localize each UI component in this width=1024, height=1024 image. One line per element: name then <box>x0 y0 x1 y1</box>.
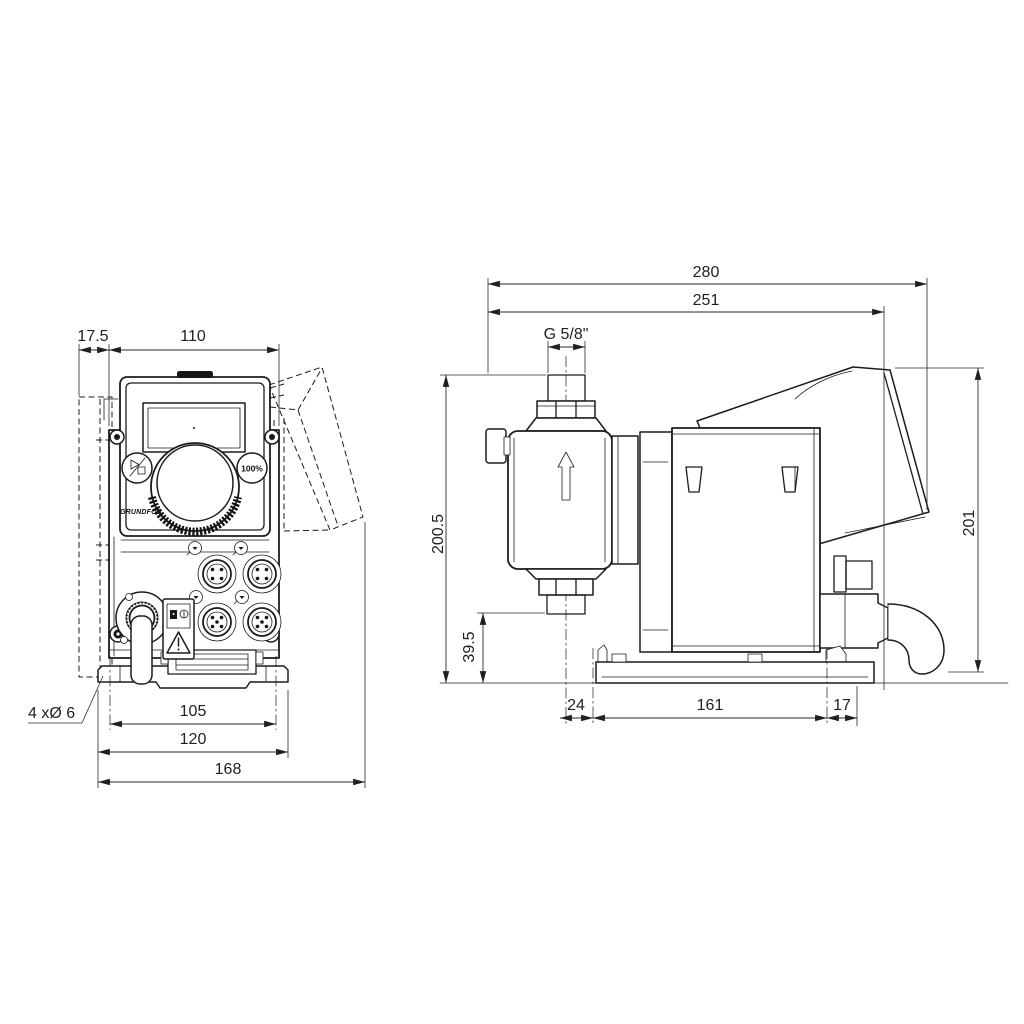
panel-top-clip <box>177 371 213 378</box>
power-cable-front <box>131 616 152 684</box>
m12-connector-top-right[interactable] <box>243 555 281 593</box>
warning-label <box>163 599 194 659</box>
outlet-thread <box>548 375 585 401</box>
pump-head-body <box>508 431 612 569</box>
gland-screw <box>126 594 133 601</box>
head-flange <box>612 436 638 564</box>
label-mounting-holes: 4 xØ 6 <box>28 676 103 723</box>
dim-text-4xd6: 4 xØ 6 <box>28 705 75 722</box>
gland-screw <box>121 637 128 644</box>
inlet-nut <box>539 579 593 595</box>
dim-text-280: 280 <box>693 264 720 281</box>
dim-text-251: 251 <box>693 292 720 309</box>
hundred-percent-button[interactable]: 100% <box>237 453 267 483</box>
dim-text-120: 120 <box>180 731 207 748</box>
tilted-cover-phantom <box>269 367 363 532</box>
motor-body-side <box>640 428 820 652</box>
dim-text-105: 105 <box>180 703 207 720</box>
panel-screw-left <box>110 430 124 444</box>
dim-text-161: 161 <box>697 697 724 714</box>
body-clip <box>686 467 702 492</box>
dim-base-front: 24 <box>560 648 593 726</box>
dim-text-110: 110 <box>180 328 206 345</box>
dim-wall-offset: 17.5 <box>77 328 109 396</box>
cable-gland-side <box>846 561 872 589</box>
dim-base-rear: 17 <box>827 686 857 726</box>
power-cable-side <box>888 604 944 674</box>
side-view <box>440 356 1008 726</box>
dim-hole-spacing-side: 161 <box>593 648 827 726</box>
drawing-canvas: 100% GRUNDFOS <box>0 0 1024 1024</box>
m12-connector-bottom-left[interactable] <box>198 603 236 641</box>
panel-screw-right <box>265 430 279 444</box>
dim-text-201: 201 <box>961 510 978 537</box>
control-panel: 100% GRUNDFOS <box>110 371 279 536</box>
dim-text-g58: G 5/8" <box>544 326 589 343</box>
outlet-nut <box>537 401 595 418</box>
start-stop-button[interactable] <box>122 453 152 483</box>
dim-text-168: 168 <box>215 761 242 778</box>
deaeration-knob <box>486 429 506 463</box>
dim-text-200-5: 200.5 <box>430 514 447 554</box>
adjustment-knob[interactable] <box>151 443 239 532</box>
body-clip <box>782 467 798 492</box>
m12-connector-bottom-right[interactable] <box>243 603 281 641</box>
brand-logo: GRUNDFOS <box>120 509 162 516</box>
dim-text-24: 24 <box>567 697 585 714</box>
dim-text-39-5: 39.5 <box>461 631 478 662</box>
dimensional-drawing: 100% GRUNDFOS <box>0 0 1024 1024</box>
hundred-percent-label: 100% <box>241 464 263 474</box>
m12-connector-top-left[interactable] <box>198 555 236 593</box>
dim-text-17: 17 <box>833 697 851 714</box>
front-view: 100% GRUNDFOS <box>79 367 363 688</box>
dim-text-17-5: 17.5 <box>77 328 108 345</box>
dim-height-inlet: 39.5 <box>461 613 545 683</box>
